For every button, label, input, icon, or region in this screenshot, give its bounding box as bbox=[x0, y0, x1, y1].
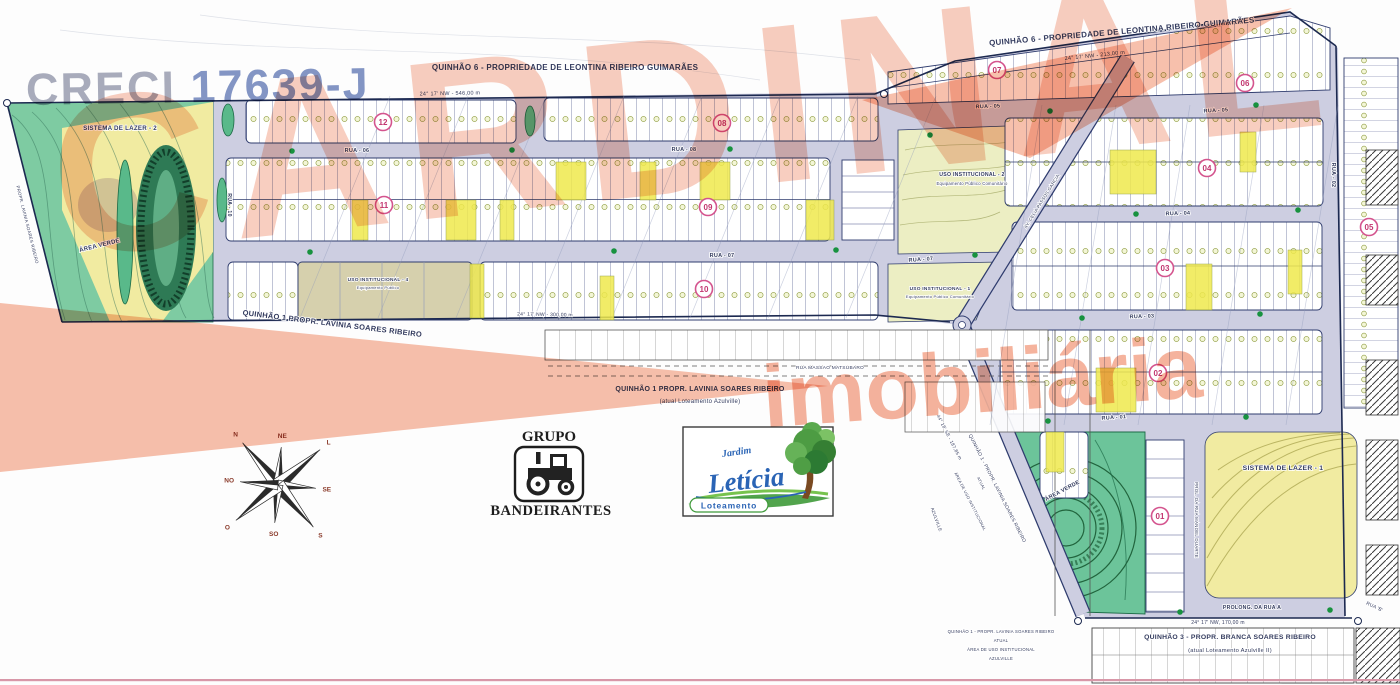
plat-map-page: GRUPO BANDEIRANTES bbox=[0, 0, 1400, 685]
label-rua-08: RUA - 08 bbox=[672, 147, 697, 153]
label-q1-atual-1: QUINHÃO 1 - PROPR. LAVINIA SOARES RIBEIR… bbox=[948, 629, 1055, 634]
label-q1-atual-2: ATUAL bbox=[994, 638, 1009, 643]
compass-point-S: S bbox=[318, 533, 323, 540]
label-rua-03: RUA - 03 bbox=[1130, 314, 1155, 321]
leticia-sub-text: Loteamento bbox=[701, 501, 757, 511]
quadra-circle-08: 08 bbox=[714, 115, 731, 132]
label-rua-02-v: RUA - 02 bbox=[1330, 163, 1336, 188]
compass-point-L: L bbox=[327, 440, 331, 447]
label-rua-10-v: RUA - 10 bbox=[226, 193, 232, 216]
label-sistema-lazer-2: SISTEMA DE LAZER - 2 bbox=[83, 125, 157, 132]
svg-text:03: 03 bbox=[1161, 264, 1170, 273]
label-quinhao6-top-left: QUINHÃO 6 - PROPRIEDADE DE LEONTINA RIBE… bbox=[432, 63, 699, 72]
label-dim-left-bottom: 24° 17' NW - 300,00 m bbox=[517, 312, 573, 319]
compass-point-SO: SO bbox=[269, 531, 278, 538]
label-quinhao3-bottom-sub: (atual Loteamento Azulville II) bbox=[1188, 648, 1272, 654]
svg-text:12: 12 bbox=[379, 118, 388, 127]
svg-text:09: 09 bbox=[704, 203, 713, 212]
label-rua-04: RUA - 04 bbox=[1166, 211, 1192, 218]
svg-text:11: 11 bbox=[380, 201, 389, 210]
quadra-circle-10: 10 bbox=[696, 281, 713, 298]
subdivision-map: GRUPO BANDEIRANTES bbox=[0, 0, 1400, 685]
label-q1-atual-4: AZULVILLE bbox=[989, 656, 1013, 661]
label-diag-atual: ATUAL bbox=[976, 476, 987, 491]
label-uso-institucional-2: USO INSTITUCIONAL - 2 bbox=[939, 172, 1004, 178]
quadra-circle-09: 09 bbox=[700, 199, 717, 216]
compass-point-O: O bbox=[225, 524, 230, 531]
label-uso-institucional-1: USO INSTITUCIONAL - 1 bbox=[910, 286, 971, 292]
compass-point-NO: NO bbox=[224, 478, 234, 485]
label-uso-institucional-1-sub: Equipamento Público Comunitário bbox=[906, 294, 975, 299]
label-uso-institucional-4-sub: Equipamento Público bbox=[357, 285, 400, 290]
quadra-circle-06: 06 bbox=[1237, 75, 1254, 92]
bottom-border-line bbox=[0, 679, 1400, 681]
svg-text:08: 08 bbox=[718, 119, 727, 128]
quadra-circle-11: 11 bbox=[376, 197, 393, 214]
svg-text:10: 10 bbox=[700, 285, 709, 294]
quadra-circle-04: 04 bbox=[1199, 160, 1216, 177]
jardim-leticia-logo: Jardim Letícia Loteamento bbox=[683, 422, 836, 516]
label-dim-bottom: 24° 17' NW, 170,00 m bbox=[1191, 620, 1245, 626]
svg-text:01: 01 bbox=[1156, 512, 1165, 521]
label-azulville-v: AZULVILLE bbox=[930, 507, 943, 532]
grupo-logo-top-text: GRUPO bbox=[522, 429, 576, 445]
label-prolong-da-rua-a: PROLONG. DA RUA A bbox=[1223, 605, 1281, 611]
compass-point-SE: SE bbox=[322, 486, 331, 493]
label-uso-institucional-4: USO INSTITUCIONAL - 4 bbox=[348, 277, 409, 283]
label-rua-07-a: RUA - 07 bbox=[710, 253, 735, 259]
label-rua-b: RUA 'B' bbox=[1365, 601, 1384, 614]
label-sistema-lazer-1: SISTEMA DE LAZER - 1 bbox=[1243, 465, 1324, 472]
quadra-circle-12: 12 bbox=[375, 114, 392, 131]
svg-text:04: 04 bbox=[1203, 164, 1212, 173]
label-dim-top-left: 24° 17' NW - 546,00 m bbox=[420, 90, 481, 97]
quadra-circle-03: 03 bbox=[1157, 260, 1174, 277]
label-q1-atual-3: ÁREA DE USO INSTITUCIONAL bbox=[967, 647, 1035, 652]
compass-rose: NNELSESSOONO bbox=[224, 431, 332, 539]
label-quinhao3-bottom: QUINHÃO 3 - PROPR. BRANCA SOARES RIBEIRO bbox=[1144, 632, 1316, 641]
label-rua-06: RUA - 06 bbox=[345, 148, 370, 154]
grupo-bandeirantes-logo: GRUPO BANDEIRANTES bbox=[490, 429, 611, 519]
svg-text:02: 02 bbox=[1154, 369, 1163, 378]
label-prol-rua-manoel-duarte: PROL. DA RUA MANOEL DUARTE bbox=[1194, 482, 1199, 558]
label-rua-massao-matsubaro: RUA MASSAO MATSUBARO bbox=[796, 365, 864, 371]
label-uso-institucional-2-sub: Equipamento Público Comunitário bbox=[936, 181, 1007, 186]
svg-text:05: 05 bbox=[1365, 223, 1374, 232]
quadra-circle-01: 01 bbox=[1152, 508, 1169, 525]
quadra-circle-05: 05 bbox=[1361, 219, 1378, 236]
svg-text:06: 06 bbox=[1241, 79, 1250, 88]
quadra-circle-02: 02 bbox=[1150, 365, 1167, 382]
grupo-logo-bottom-text: BANDEIRANTES bbox=[490, 503, 611, 519]
